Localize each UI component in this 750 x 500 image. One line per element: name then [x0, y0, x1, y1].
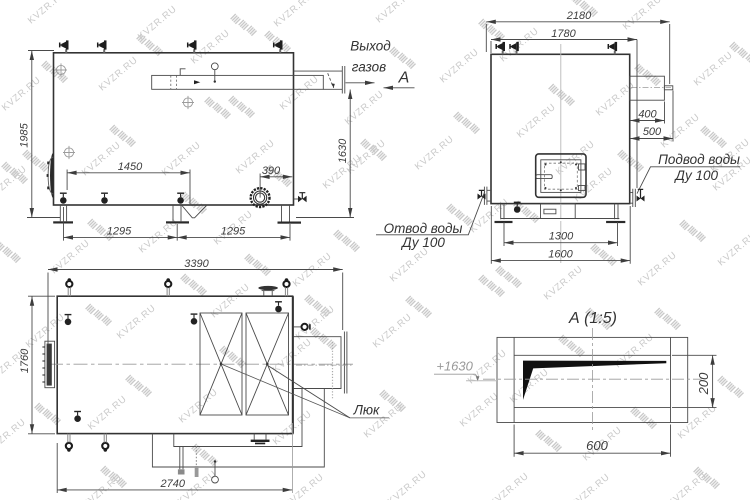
svg-text:Ду 100: Ду 100: [400, 235, 445, 250]
svg-text:2180: 2180: [566, 10, 592, 22]
svg-text:1295: 1295: [107, 225, 132, 237]
svg-text:400: 400: [638, 109, 657, 121]
svg-text:600: 600: [586, 438, 608, 453]
svg-text:Отвод воды: Отвод воды: [384, 221, 463, 236]
svg-text:газов: газов: [352, 60, 386, 75]
svg-text:390: 390: [262, 165, 281, 177]
svg-text:1780: 1780: [551, 28, 576, 40]
svg-text:1630: 1630: [337, 138, 349, 163]
svg-text:1760: 1760: [19, 348, 31, 373]
svg-text:500: 500: [643, 126, 662, 138]
svg-text:А: А: [398, 70, 410, 87]
svg-text:+1630: +1630: [436, 359, 473, 374]
svg-text:1985: 1985: [19, 122, 31, 147]
svg-text:Люк: Люк: [353, 402, 380, 417]
svg-text:2740: 2740: [160, 478, 186, 490]
svg-text:200: 200: [696, 372, 711, 395]
svg-text:1300: 1300: [549, 231, 574, 243]
svg-text:Ду 100: Ду 100: [673, 168, 718, 183]
svg-text:А (1:5): А (1:5): [568, 310, 617, 327]
svg-text:1450: 1450: [118, 161, 143, 173]
svg-text:Выход: Выход: [350, 39, 391, 54]
svg-text:Подвод воды: Подвод воды: [658, 152, 740, 167]
svg-text:1600: 1600: [548, 249, 573, 261]
svg-text:3390: 3390: [184, 258, 209, 270]
svg-text:1295: 1295: [221, 225, 246, 237]
